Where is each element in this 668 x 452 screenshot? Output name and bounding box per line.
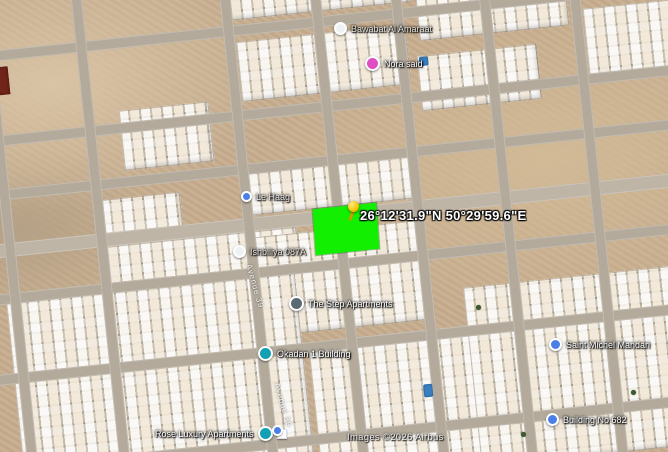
poi-rose-luxury[interactable]: Rose Luxury Apartments: [155, 426, 287, 441]
poi-label: Saint Michel Mandari: [566, 340, 650, 350]
poi-icon: [365, 56, 380, 71]
poi-step-apartments[interactable]: The Step Apartments: [289, 296, 393, 311]
poi-label: Bawabat Al Amaraat: [351, 24, 432, 34]
poi-icon: [258, 346, 273, 361]
satellite-map[interactable]: 26°12'31.9"N 50°29'59.6"E Bawabat Al Ama…: [0, 0, 668, 452]
poi-icon: [258, 426, 273, 441]
poi-building-682[interactable]: Building No 682: [546, 413, 627, 426]
poi-saint-michel[interactable]: Saint Michel Mandari: [549, 338, 650, 351]
labels-overlay: 26°12'31.9"N 50°29'59.6"E Bawabat Al Ama…: [0, 0, 668, 452]
poi-label: Ishbiliya 087A: [250, 247, 306, 257]
poi-label: Nora said: [384, 59, 423, 69]
coordinate-label[interactable]: 26°12'31.9"N 50°29'59.6"E: [360, 208, 527, 223]
poi-nora-said[interactable]: Nora said: [365, 56, 423, 71]
street-label-avenue-39-upper: Avenue 39: [244, 263, 265, 309]
poi-label: Rose Luxury Apartments: [155, 429, 254, 439]
poi-icon: [289, 296, 304, 311]
poi-label: Okadan 1 Building: [277, 349, 351, 359]
pin-head: [348, 201, 359, 212]
poi-label: Building No 682: [563, 415, 627, 425]
poi-le-haag[interactable]: Le Haag: [241, 191, 290, 202]
poi-icon: [334, 22, 347, 35]
poi-ishbiliya[interactable]: Ishbiliya 087A: [233, 245, 306, 258]
tree-icon: [631, 390, 636, 395]
poi-label: The Step Apartments: [308, 299, 393, 309]
street-label-avenue-39-lower: Avenue 39: [272, 382, 293, 428]
poi-icon: [233, 245, 246, 258]
poi-label: Le Haag: [256, 192, 290, 202]
tree-icon: [476, 305, 481, 310]
poi-okadan-building[interactable]: Okadan 1 Building: [258, 346, 351, 361]
poi-bawabat[interactable]: Bawabat Al Amaraat: [334, 22, 432, 35]
poi-icon: [241, 191, 252, 202]
poi-dot-on-road[interactable]: [272, 425, 283, 436]
poi-icon: [546, 413, 559, 426]
imagery-attribution: Images ©2026 Airbus: [347, 432, 444, 443]
tree-icon: [521, 432, 526, 437]
poi-icon: [549, 338, 562, 351]
